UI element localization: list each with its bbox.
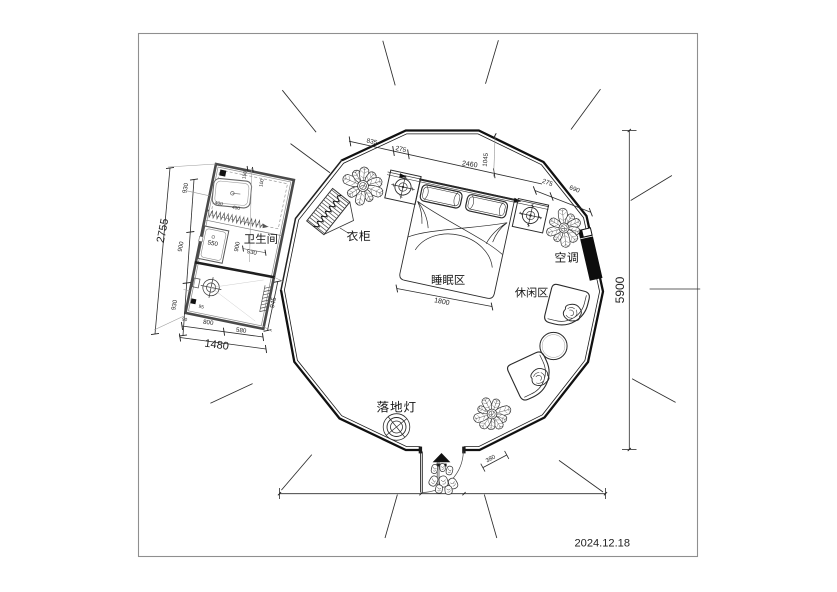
svg-text:2024.12.18: 2024.12.18 bbox=[575, 538, 631, 550]
svg-text:580: 580 bbox=[236, 327, 248, 335]
svg-text:5900: 5900 bbox=[613, 276, 627, 303]
svg-text:1045: 1045 bbox=[482, 152, 490, 167]
svg-text:800: 800 bbox=[203, 319, 215, 327]
